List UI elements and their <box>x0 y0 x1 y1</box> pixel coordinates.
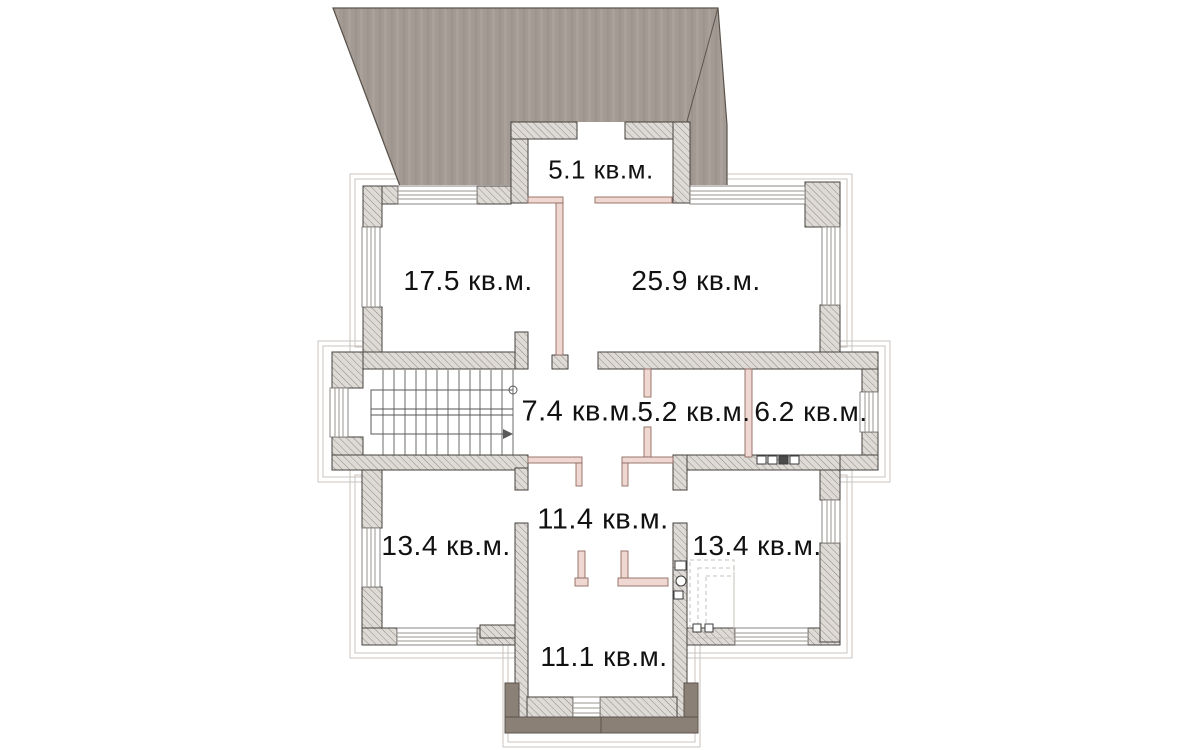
partition <box>528 457 582 463</box>
wall <box>673 455 687 490</box>
room-5-2-label: 5.2 кв.м. <box>637 396 750 428</box>
wall <box>598 352 878 369</box>
wall-duct <box>675 561 686 570</box>
balcony-door <box>573 697 600 717</box>
room-5-1-label: 5.1 кв.м. <box>548 155 653 186</box>
room-7-4-label: 7.4 кв.м. <box>521 396 638 429</box>
partition <box>644 369 651 397</box>
partition <box>528 197 563 203</box>
vent-square <box>768 456 777 464</box>
wall <box>600 697 677 717</box>
wall-duct-round <box>676 576 686 586</box>
threshold-square <box>693 624 701 632</box>
window <box>398 186 477 204</box>
vent-square <box>790 456 799 464</box>
wall <box>511 122 577 139</box>
wall <box>332 352 363 388</box>
partition <box>576 463 582 486</box>
window <box>362 528 380 587</box>
partition <box>556 203 563 355</box>
vent-square <box>757 456 766 464</box>
partition <box>575 578 588 586</box>
room-13-4-right-label: 13.4 кв.м. <box>692 530 821 562</box>
wall <box>840 455 878 470</box>
wall <box>862 432 878 455</box>
window <box>735 628 808 645</box>
window <box>330 388 348 437</box>
wall <box>527 697 573 717</box>
wall <box>820 470 840 500</box>
window <box>397 628 477 645</box>
wall <box>332 455 528 470</box>
wall <box>515 332 528 369</box>
room-17-5-label: 17.5 кв.м. <box>403 265 532 297</box>
room-11-4-label: 11.4 кв.м. <box>537 504 669 537</box>
wall <box>805 182 840 227</box>
wall-duct <box>674 591 683 599</box>
wall <box>673 122 690 203</box>
partition <box>595 197 672 203</box>
room-25-9-label: 25.9 кв.м. <box>631 265 760 297</box>
window <box>690 186 805 204</box>
room-13-4-left-label: 13.4 кв.м. <box>381 530 510 562</box>
room-6-2-label: 6.2 кв.м. <box>754 396 867 428</box>
partition <box>621 551 628 578</box>
wall <box>552 355 568 369</box>
wall <box>862 369 878 392</box>
wall <box>363 186 382 227</box>
wall <box>820 543 840 642</box>
window <box>822 500 840 543</box>
room-11-1-label: 11.1 кв.м. <box>540 641 667 673</box>
floor-plan-drawing <box>0 0 1200 750</box>
partition <box>644 427 651 457</box>
threshold-square <box>705 624 713 632</box>
wall <box>477 186 511 204</box>
wall <box>515 468 528 490</box>
wall <box>362 628 397 645</box>
vent-square-dark <box>779 456 788 464</box>
partition <box>618 578 668 586</box>
partition <box>622 463 628 486</box>
floor-plan-canvas: 5.1 кв.м. 17.5 кв.м. 25.9 кв.м. 7.4 кв.м… <box>0 0 1200 750</box>
wall <box>480 625 515 638</box>
partition <box>578 551 585 578</box>
window <box>822 227 840 305</box>
partition <box>622 457 673 463</box>
wall <box>362 470 382 528</box>
window <box>362 227 380 307</box>
